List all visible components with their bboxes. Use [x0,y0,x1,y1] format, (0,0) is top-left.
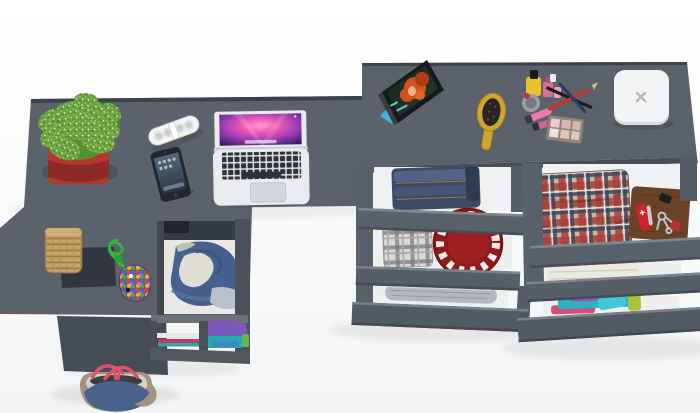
compartment-left-wall [157,221,164,315]
left-chest-left-post [356,166,373,314]
desk-shelf-unit [149,315,250,364]
laptop-dock [245,140,277,144]
scene [0,0,700,413]
right-chest-right-post [680,156,697,201]
shelf-divider [199,321,208,352]
eyeshadow-palette [546,115,585,144]
render-canvas [0,0,700,413]
macbook-laptop [210,110,312,209]
nail-polish-yellow [526,77,541,96]
laptop-trackpad [250,183,285,203]
wicker-basket [45,228,82,273]
right-chest [517,156,700,342]
laptop-spacebar [241,172,281,179]
tartan-shirt [532,169,632,252]
right-chest-left-post [522,163,544,291]
white-box [614,70,674,130]
left-chest [351,165,531,332]
folded-jeans [391,165,480,210]
